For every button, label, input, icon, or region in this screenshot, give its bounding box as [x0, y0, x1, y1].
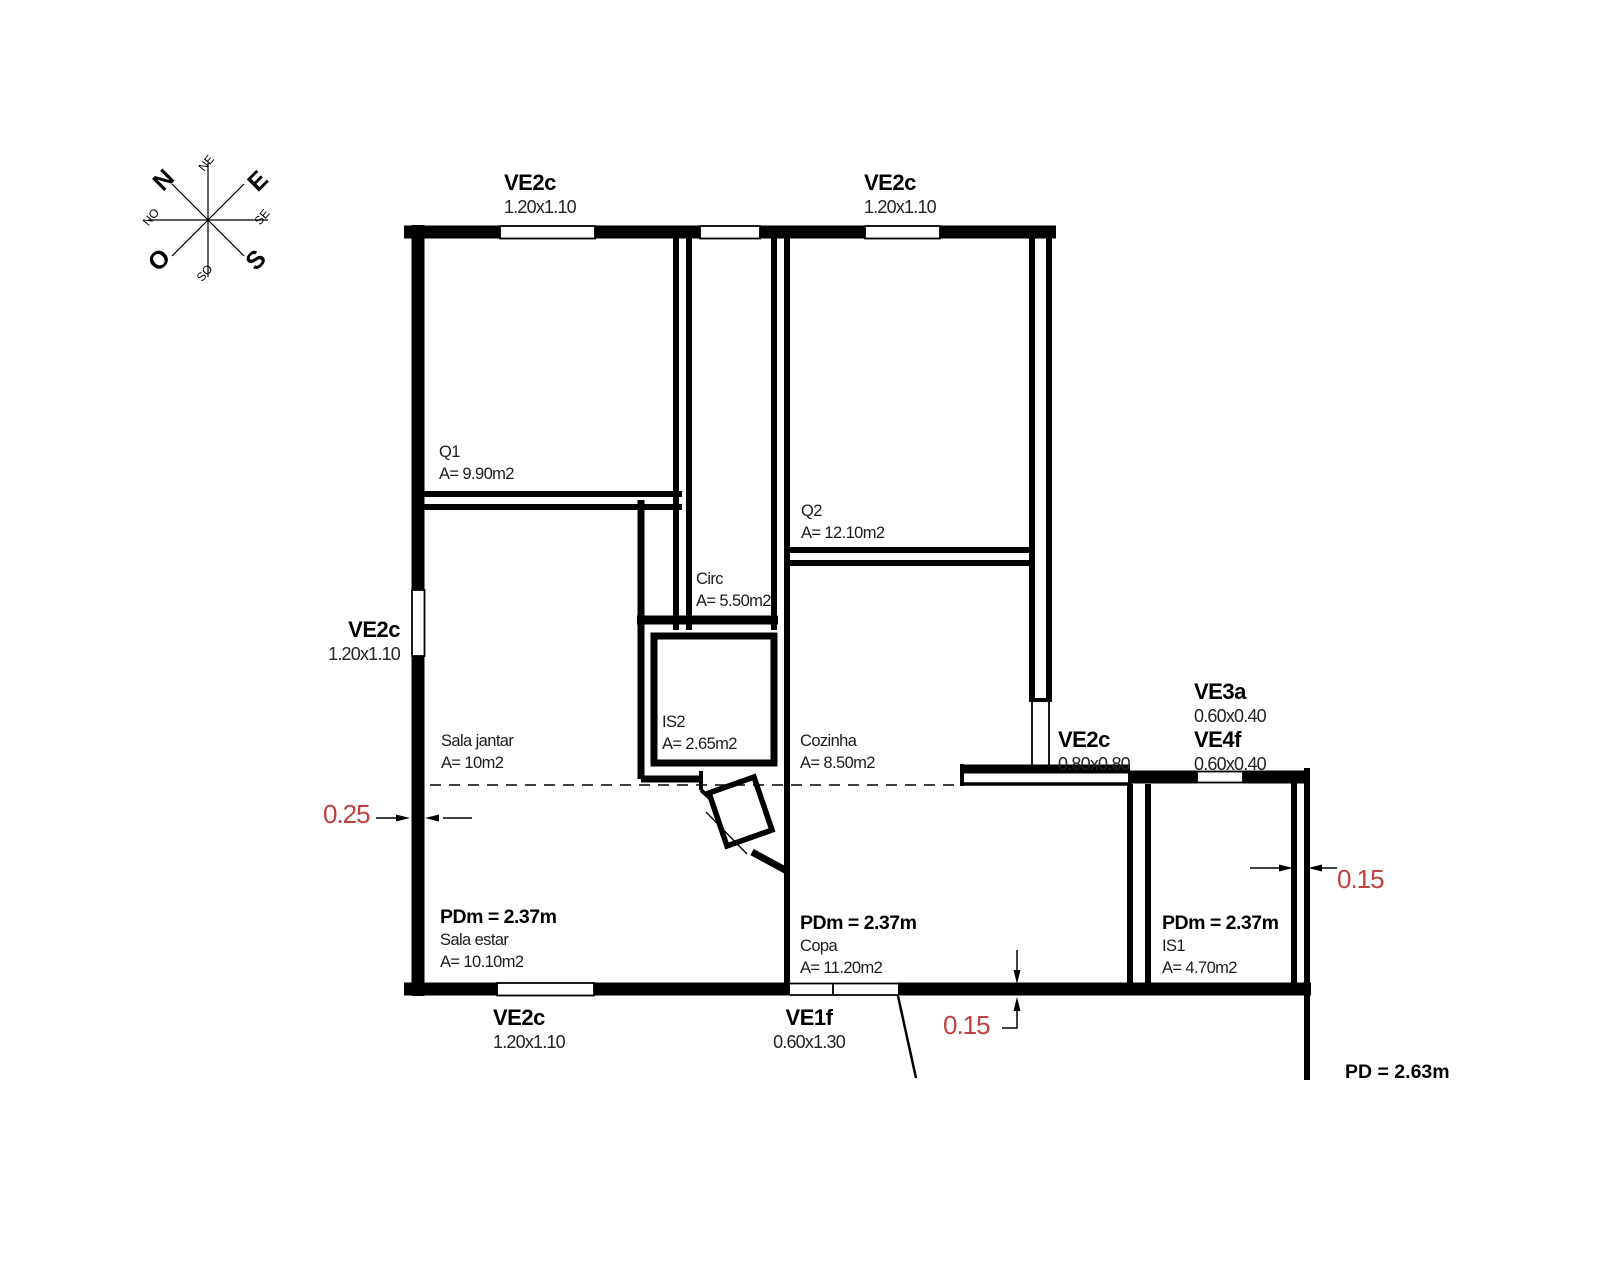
room-label-q1: Q1 A= 9.90m2	[439, 441, 514, 485]
room-label-sala-estar: PDm = 2.37m Sala estar A= 10.10m2	[440, 906, 556, 973]
window-size: 0.80x0.80	[1058, 753, 1130, 776]
room-area: A= 12.10m2	[801, 522, 884, 544]
room-label-is2: IS2 A= 2.65m2	[662, 711, 737, 755]
room-area: A= 10.10m2	[440, 951, 556, 973]
room-name: Circ	[696, 568, 771, 590]
room-name: Sala jantar	[441, 730, 513, 752]
window-size: 1.20x1.10	[864, 196, 936, 219]
window-code: VE2c	[1058, 726, 1130, 753]
room-area: A= 4.70m2	[1162, 957, 1278, 979]
room-label-is1: PDm = 2.37m IS1 A= 4.70m2	[1162, 912, 1278, 979]
window-code: VE4f	[1194, 726, 1266, 753]
room-label-sala-jantar: Sala jantar A= 10m2	[441, 730, 513, 774]
window-label-ve2c-top-left: VE2c 1.20x1.10	[504, 169, 576, 219]
outer-walls	[404, 225, 1311, 996]
room-label-copa: PDm = 2.37m Copa A= 11.20m2	[800, 912, 916, 979]
ceiling-height-label: PDm = 2.37m	[440, 906, 556, 929]
window-label-ve2c-top-right: VE2c 1.20x1.10	[864, 169, 936, 219]
room-name: IS1	[1162, 935, 1278, 957]
room-name: Q2	[801, 500, 884, 522]
room-name: Q1	[439, 441, 514, 463]
room-area: A= 5.50m2	[696, 590, 771, 612]
door-code: VE1f	[771, 1004, 847, 1031]
room-label-cozinha: Cozinha A= 8.50m2	[800, 730, 875, 774]
door-size: 0.60x1.30	[771, 1031, 847, 1054]
floor-plan-drawing	[0, 0, 1600, 1280]
interior-walls	[637, 500, 1132, 871]
window-size: 1.20x1.10	[493, 1031, 565, 1054]
window-code: VE2c	[504, 169, 576, 196]
room-name: Copa	[800, 935, 916, 957]
room-name: IS2	[662, 711, 737, 733]
ceiling-height-note: PD = 2.63m	[1345, 1061, 1450, 1084]
dimension-right-wall: 0.15	[1337, 864, 1384, 895]
room-area: A= 9.90m2	[439, 463, 514, 485]
window-code: VE2c	[864, 169, 936, 196]
window-label-ve2c-bottom: VE2c 1.20x1.10	[493, 1004, 565, 1054]
dimension-left-wall: 0.25	[323, 799, 370, 830]
floor-plan-page: { "compass": {"n":"N","e":"E","o":"O","s…	[0, 0, 1600, 1280]
window-size: 0.60x0.40	[1194, 753, 1266, 776]
room-name: Sala estar	[440, 929, 556, 951]
room-name: Cozinha	[800, 730, 875, 752]
dimension-bottom-wall: 0.15	[943, 1010, 990, 1041]
window-size: 1.20x1.10	[320, 643, 400, 666]
room-area: A= 2.65m2	[662, 733, 737, 755]
room-label-q2: Q2 A= 12.10m2	[801, 500, 884, 544]
ceiling-height-label: PDm = 2.37m	[800, 912, 916, 935]
window-label-ve3a: VE3a 0.60x0.40	[1194, 678, 1266, 728]
room-area: A= 11.20m2	[800, 957, 916, 979]
window-code: VE3a	[1194, 678, 1266, 705]
window-size: 1.20x1.10	[504, 196, 576, 219]
window-code: VE2c	[320, 616, 400, 643]
window-symbols	[412, 226, 1243, 996]
window-code: VE2c	[493, 1004, 565, 1031]
ceiling-height-label: PDm = 2.37m	[1162, 912, 1278, 935]
window-label-ve4f: VE4f 0.60x0.40	[1194, 726, 1266, 776]
room-label-circ: Circ A= 5.50m2	[696, 568, 771, 612]
door-label-ve1f: VE1f 0.60x1.30	[771, 1004, 847, 1054]
window-size: 0.60x0.40	[1194, 705, 1266, 728]
room-area: A= 10m2	[441, 752, 513, 774]
room-area: A= 8.50m2	[800, 752, 875, 774]
window-label-ve2c-kitchen: VE2c 0.80x0.80	[1058, 726, 1130, 776]
window-label-ve2c-left: VE2c 1.20x1.10	[320, 616, 400, 666]
